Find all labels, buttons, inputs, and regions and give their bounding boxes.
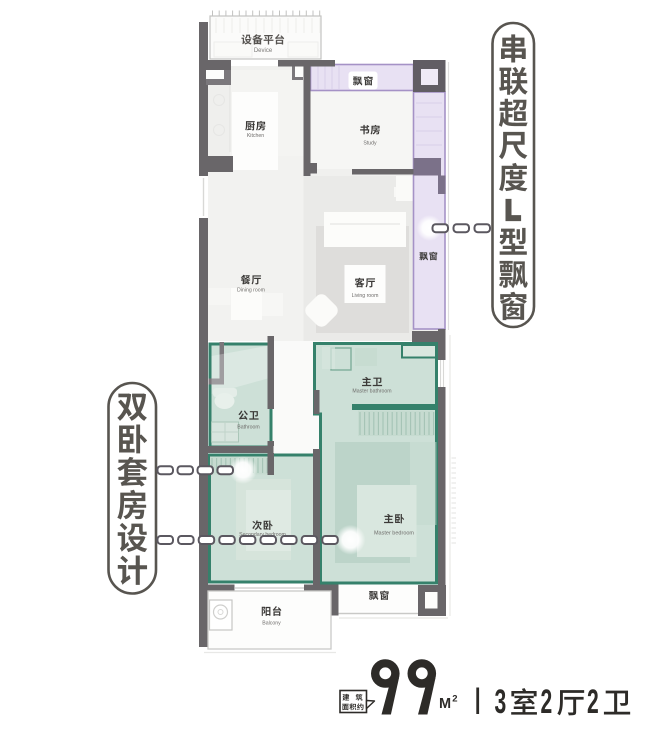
svg-text:Master bedroom: Master bedroom xyxy=(374,530,414,536)
svg-text:2: 2 xyxy=(541,682,553,720)
svg-text:Balcony: Balcony xyxy=(262,621,281,627)
svg-text:Device: Device xyxy=(254,48,273,54)
svg-text:Master bathroom: Master bathroom xyxy=(352,388,391,394)
svg-text:3: 3 xyxy=(495,682,507,720)
svg-text:Dining room: Dining room xyxy=(237,288,265,294)
svg-text:Living room: Living room xyxy=(352,293,379,299)
svg-text:Study: Study xyxy=(363,141,377,147)
svg-text:2: 2 xyxy=(587,682,599,720)
svg-text:Kitchen: Kitchen xyxy=(247,133,264,139)
svg-text:2: 2 xyxy=(452,694,457,705)
svg-text:M: M xyxy=(439,696,451,712)
svg-text:Bathroom: Bathroom xyxy=(237,425,260,431)
